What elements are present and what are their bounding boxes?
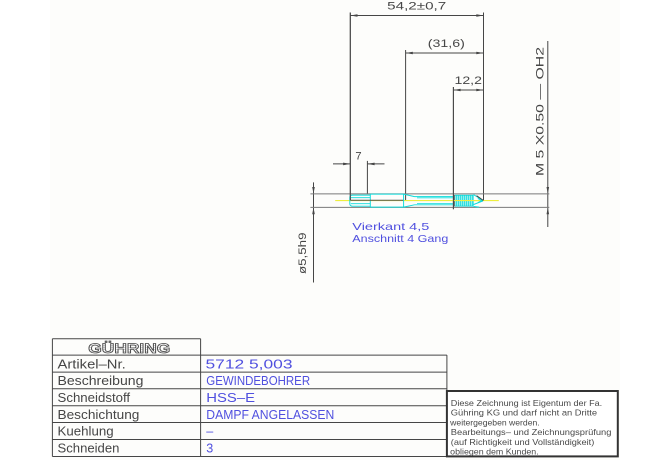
svg-text:Beschichtung: Beschichtung xyxy=(58,407,140,422)
svg-text:GÜHRING: GÜHRING xyxy=(88,340,170,356)
svg-text:3: 3 xyxy=(206,440,213,455)
svg-text:Diese Zeichnung ist Eigentum d: Diese Zeichnung ist Eigentum der Fa. xyxy=(451,399,602,408)
svg-text:GEWINDEBOHRER: GEWINDEBOHRER xyxy=(206,373,310,388)
svg-text:(31,6): (31,6) xyxy=(428,38,465,50)
svg-text:Gühring KG und darf nicht an D: Gühring KG und darf nicht an Dritte xyxy=(451,409,598,418)
svg-text:DAMPF ANGELASSEN: DAMPF ANGELASSEN xyxy=(206,407,334,422)
svg-text:Schneiden: Schneiden xyxy=(58,440,120,455)
svg-text:obliegen dem Kunden.: obliegen dem Kunden. xyxy=(450,447,539,456)
svg-text:M 5 X0.50 — OH2: M 5 X0.50 — OH2 xyxy=(535,47,547,176)
svg-text:Kuehlung: Kuehlung xyxy=(58,424,114,439)
svg-text:ø5,5h9: ø5,5h9 xyxy=(297,233,309,275)
svg-text:12,2: 12,2 xyxy=(455,75,482,87)
svg-text:Schneidstoff: Schneidstoff xyxy=(58,390,131,405)
svg-text:7: 7 xyxy=(355,150,361,162)
svg-text:–: – xyxy=(206,424,214,439)
svg-text:Bearbeitungs– und Zeichnungspr: Bearbeitungs– und Zeichnungsprüfung xyxy=(451,428,612,437)
svg-text:54,2±0,7: 54,2±0,7 xyxy=(387,0,446,12)
svg-text:(auf Richtigkeit und Vollständ: (auf Richtigkeit und Vollständigkeit) xyxy=(451,438,595,447)
svg-text:Beschreibung: Beschreibung xyxy=(58,373,144,388)
svg-text:Artikel–Nr.: Artikel–Nr. xyxy=(58,356,126,371)
svg-text:Vierkant 4,5: Vierkant 4,5 xyxy=(352,222,429,233)
svg-text:Anschnitt 4 Gang: Anschnitt 4 Gang xyxy=(352,234,448,245)
svg-text:weitergegeben werden.: weitergegeben werden. xyxy=(449,418,540,427)
svg-text:5712 5,003: 5712 5,003 xyxy=(206,356,293,371)
svg-text:HSS–E: HSS–E xyxy=(206,390,255,405)
